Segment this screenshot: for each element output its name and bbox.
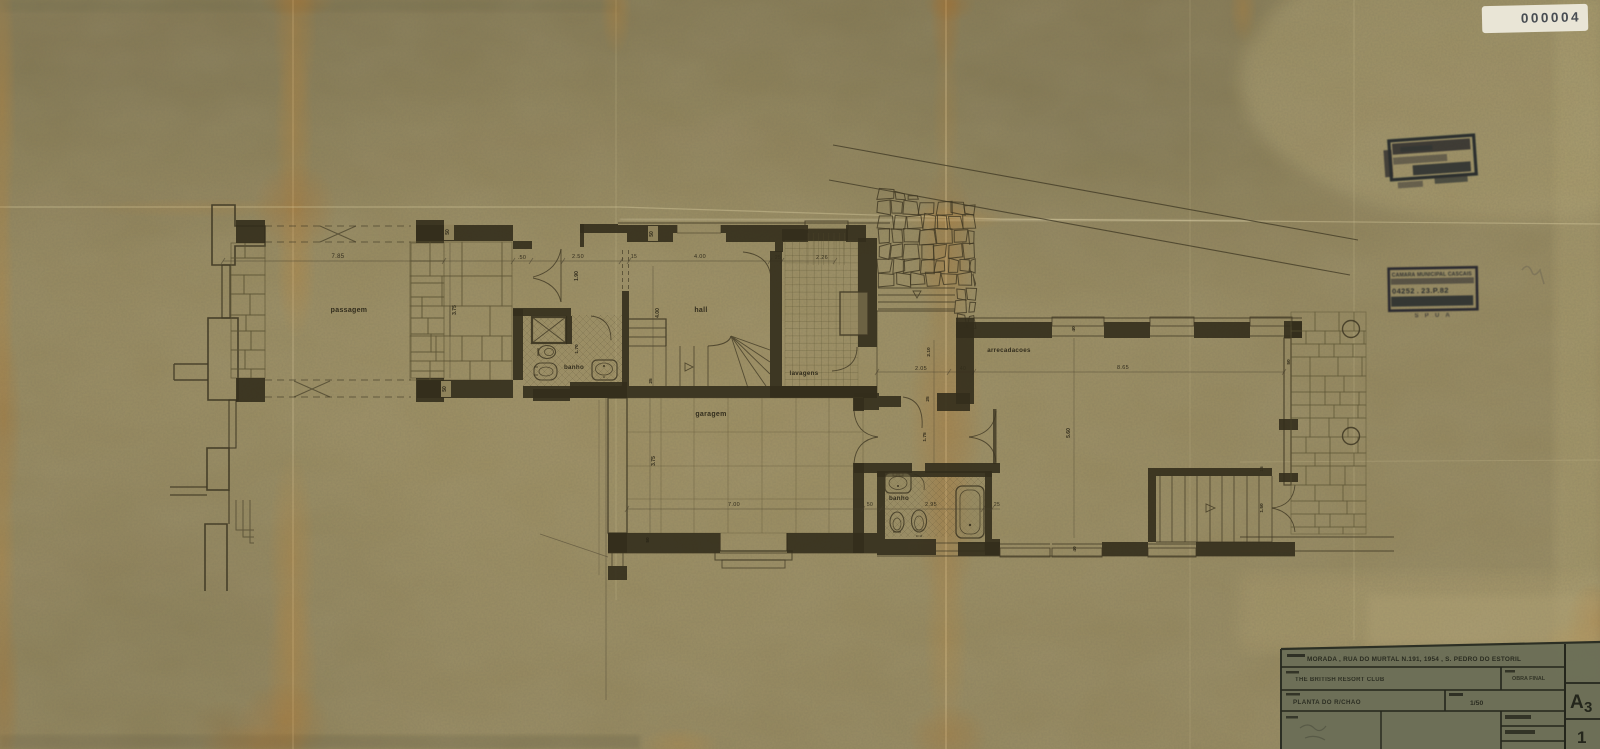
svg-text:passagem: passagem <box>331 307 368 314</box>
svg-text:banho: banho <box>564 364 584 371</box>
svg-text:THE BRITISH RESORT CLUB: THE BRITISH RESORT CLUB <box>1295 677 1385 683</box>
svg-text:1.50: 1.50 <box>1259 503 1265 513</box>
svg-text:banho: banho <box>889 495 909 502</box>
svg-text:3: 3 <box>1584 699 1592 716</box>
svg-text:25: 25 <box>925 396 931 402</box>
svg-text:50: 50 <box>442 386 448 392</box>
svg-text:4.00: 4.00 <box>655 308 661 318</box>
svg-text:50: 50 <box>445 229 451 235</box>
svg-text:2.95: 2.95 <box>925 502 937 508</box>
svg-text:lavagens: lavagens <box>790 370 819 377</box>
svg-text:50: 50 <box>649 231 655 237</box>
svg-text:3.75: 3.75 <box>452 305 458 315</box>
svg-text:5.60: 5.60 <box>1066 428 1072 438</box>
svg-text:MORADA , RUA DO MURTAL N.191,: MORADA , RUA DO MURTAL N.191, 1954 , S. … <box>1307 656 1521 663</box>
svg-text:8.65: 8.65 <box>1117 365 1129 371</box>
svg-text:OBRA FINAL: OBRA FINAL <box>1512 676 1546 682</box>
svg-text:S P U A: S P U A <box>1415 313 1453 320</box>
svg-text:7.00: 7.00 <box>728 502 740 508</box>
svg-text:7.85: 7.85 <box>332 254 345 260</box>
svg-text:1.70: 1.70 <box>574 344 580 354</box>
svg-text:3.75: 3.75 <box>651 456 657 466</box>
svg-text:40: 40 <box>1071 326 1077 332</box>
svg-text:4.00: 4.00 <box>694 254 706 260</box>
svg-text:PLANTA DO R/CHAO: PLANTA DO R/CHAO <box>1293 699 1361 706</box>
svg-text:25: 25 <box>648 378 654 384</box>
svg-text:04252 . 23.P.82: 04252 . 23.P.82 <box>1392 286 1449 296</box>
svg-text:a: a <box>603 375 605 379</box>
svg-text:2.50: 2.50 <box>572 254 584 260</box>
svg-text:25: 25 <box>994 502 1000 508</box>
svg-text:arrecadacoes: arrecadacoes <box>987 347 1031 354</box>
svg-text:.50: .50 <box>518 255 527 261</box>
svg-text:a=a: a=a <box>916 534 922 538</box>
svg-text:hall: hall <box>694 307 707 314</box>
svg-text:15: 15 <box>631 254 637 260</box>
svg-text:000004: 000004 <box>1521 9 1581 25</box>
svg-text:1: 1 <box>1577 728 1586 747</box>
svg-text:50: 50 <box>867 502 873 508</box>
svg-text:50: 50 <box>645 537 651 543</box>
svg-text:40: 40 <box>1072 546 1078 552</box>
svg-text:2.05: 2.05 <box>915 366 927 372</box>
svg-text:2.10: 2.10 <box>926 347 932 357</box>
svg-text:2.26: 2.26 <box>816 255 828 261</box>
svg-text:garagem: garagem <box>695 411 726 418</box>
svg-text:1/50: 1/50 <box>1470 700 1483 707</box>
svg-text:1.90: 1.90 <box>574 271 580 281</box>
svg-text:A: A <box>1570 692 1584 713</box>
svg-text:1.75: 1.75 <box>922 432 928 442</box>
